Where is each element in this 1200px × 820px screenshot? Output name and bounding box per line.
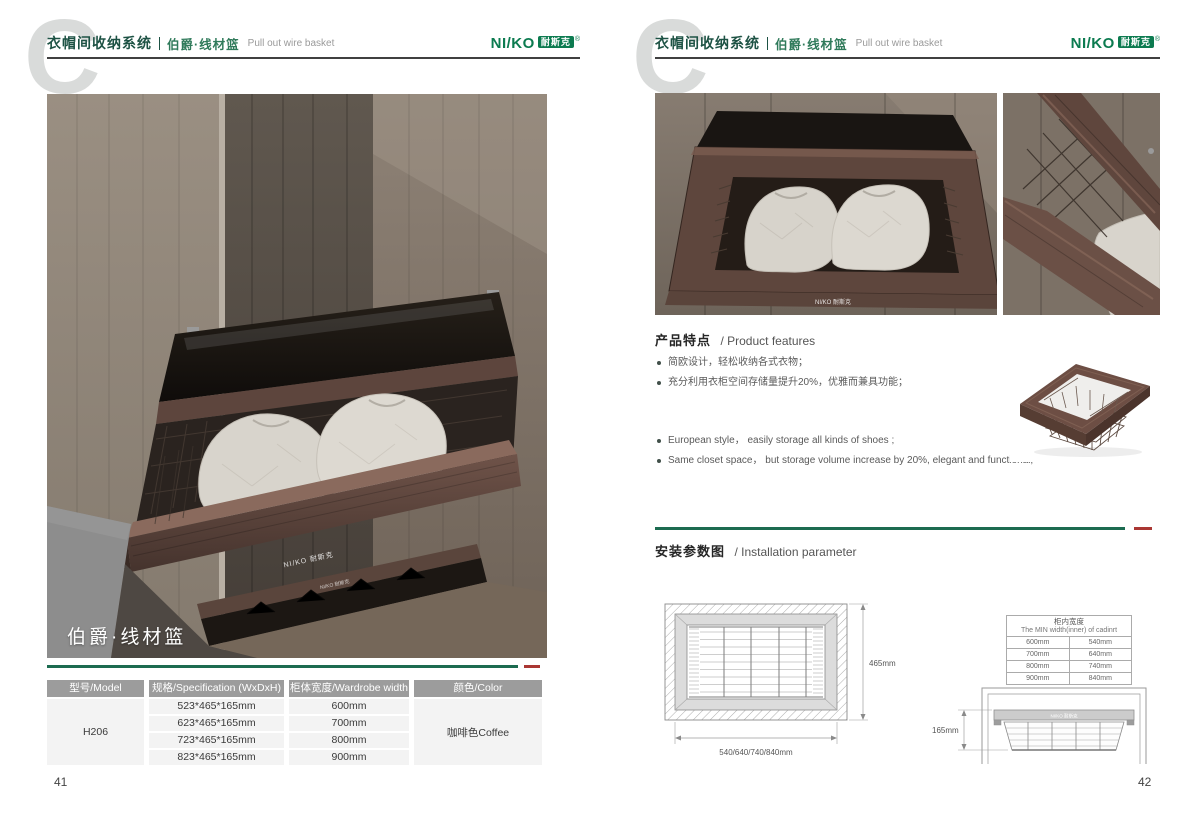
min-width-cell: 540mm (1069, 637, 1132, 649)
registered-mark: ® (1155, 36, 1160, 43)
header-divider (159, 37, 160, 50)
width-cell: 700mm (289, 716, 409, 731)
feature-text: 充分利用衣柜空间存储量提升20%，优雅而兼具功能； (668, 376, 908, 390)
installation-title-en: / Installation parameter (734, 545, 856, 559)
min-width-table-header: 柜内宽度 The MIN width(inner) of cadinrt (1007, 616, 1132, 637)
width-cell: 600mm (289, 699, 409, 714)
min-width-title-zh: 柜内宽度 (1007, 616, 1131, 626)
logo-wordmark: NI/KO (1071, 36, 1115, 51)
cabinet-width-cell: 700mm (1007, 649, 1070, 661)
header-product-title: 伯爵·线材篮 (167, 34, 240, 53)
photo-caption: 伯爵·线材篮 (67, 622, 186, 649)
spec-col-header-model: 型号/Model (47, 680, 144, 697)
width-cell: 900mm (289, 750, 409, 765)
cabinet-width-cell: 600mm (1007, 637, 1070, 649)
spec-cell: 823*465*165mm (149, 750, 284, 765)
bullet-icon (657, 381, 661, 385)
features-heading: 产品特点 / Product features (655, 330, 815, 350)
features-title-en: / Product features (720, 334, 815, 348)
rail-logo-text: NI/KO 耐斯克 (1050, 713, 1078, 720)
feature-text: European style， easily storage all kinds… (668, 434, 894, 448)
height-dimension-label: 165mm (932, 726, 959, 735)
header-rule (655, 57, 1160, 59)
header-product-subtitle: Pull out wire basket (856, 38, 943, 49)
logo-cn-badge: 耐斯克 (1118, 36, 1154, 48)
detail-photo-basket-top: NI/KO 耐斯克 (655, 93, 997, 315)
header-product-subtitle: Pull out wire basket (248, 38, 335, 49)
width-cell: 800mm (289, 733, 409, 748)
brand-logo: NI/KO 耐斯克 ® (491, 36, 580, 51)
header-rule (47, 57, 580, 59)
divider-green-bar (655, 527, 1125, 530)
header-system-title: 衣帽间收纳系统 (47, 33, 152, 53)
divider-red-bar (524, 665, 540, 668)
spec-col-header-spec: 规格/Specification (WxDxH) (149, 680, 284, 697)
min-width-cell: 640mm (1069, 649, 1132, 661)
page-number-right: 42 (1138, 775, 1151, 789)
divider-red-bar (1134, 527, 1152, 530)
features-title-zh: 产品特点 (655, 333, 711, 348)
spec-cell: 623*465*165mm (149, 716, 284, 731)
logo-wordmark: NI/KO (491, 36, 535, 51)
detail-photo-frame-corner (1003, 93, 1160, 315)
header-system-title: 衣帽间收纳系统 (655, 33, 760, 53)
installation-title-zh: 安装参数图 (655, 544, 725, 559)
cabinet-width-cell: 900mm (1007, 673, 1070, 685)
spec-col-header-color: 颜色/Color (414, 680, 542, 697)
spec-model-cell: H206 (47, 699, 144, 765)
bullet-icon (657, 361, 661, 365)
table-row: 600mm540mm (1007, 637, 1132, 649)
table-row: 900mm840mm (1007, 673, 1132, 685)
spec-col-header-width: 柜体宽度/Wardrobe width (289, 680, 409, 697)
brand-logo: NI/KO 耐斯克 ® (1071, 36, 1160, 51)
main-product-photo: NI/KO 耐斯克 NI/KO 耐斯克 (47, 94, 547, 658)
min-width-cell: 740mm (1069, 661, 1132, 673)
cabinet-width-cell: 800mm (1007, 661, 1070, 673)
page-header-right: 衣帽间收纳系统 伯爵·线材篮 Pull out wire basket NI/K… (655, 33, 1160, 53)
feature-text: Same closet space， but storage volume in… (668, 454, 1033, 468)
installation-front-view: NI/KO 耐斯克 165mm (930, 684, 1165, 768)
depth-dimension-label: 465mm (869, 659, 896, 668)
spec-table: 型号/Model 规格/Specification (WxDxH) 柜体宽度/W… (47, 680, 547, 765)
divider-green-bar (47, 665, 518, 668)
min-width-table: 柜内宽度 The MIN width(inner) of cadinrt 600… (1006, 615, 1132, 685)
logo-cn-badge: 耐斯克 (538, 36, 574, 48)
header-divider (767, 37, 768, 50)
spec-cell: 723*465*165mm (149, 733, 284, 748)
bullet-icon (657, 459, 661, 463)
width-dimension-label: 540/640/740/840mm (719, 748, 793, 757)
rail-logo-text: NI/KO 耐斯克 (815, 298, 851, 306)
catalog-spread: C 衣帽间收纳系统 伯爵·线材篮 Pull out wire basket NI… (0, 0, 1200, 820)
registered-mark: ® (575, 36, 580, 43)
table-row: 700mm640mm (1007, 649, 1132, 661)
header-product-title: 伯爵·线材篮 (775, 34, 848, 53)
min-width-title-en: The MIN width(inner) of cadinrt (1007, 626, 1131, 636)
bullet-icon (657, 439, 661, 443)
page-header-left: 衣帽间收纳系统 伯爵·线材篮 Pull out wire basket NI/K… (47, 33, 580, 53)
section-divider-right (655, 527, 1160, 530)
feature-text: 简欧设计，轻松收纳各式衣物； (668, 356, 808, 370)
installation-heading: 安装参数图 / Installation parameter (655, 541, 857, 561)
spec-color-cell: 咖啡色Coffee (414, 699, 542, 765)
min-width-cell: 840mm (1069, 673, 1132, 685)
wardrobe-photo-illustration: NI/KO 耐斯克 NI/KO 耐斯克 (47, 94, 547, 658)
spec-cell: 523*465*165mm (149, 699, 284, 714)
page-number-left: 41 (54, 775, 67, 789)
product-render (1010, 332, 1160, 462)
installation-top-view: 465mm 540/640/740/840mm (662, 598, 902, 768)
table-row: 800mm740mm (1007, 661, 1132, 673)
section-divider-left (47, 665, 547, 668)
